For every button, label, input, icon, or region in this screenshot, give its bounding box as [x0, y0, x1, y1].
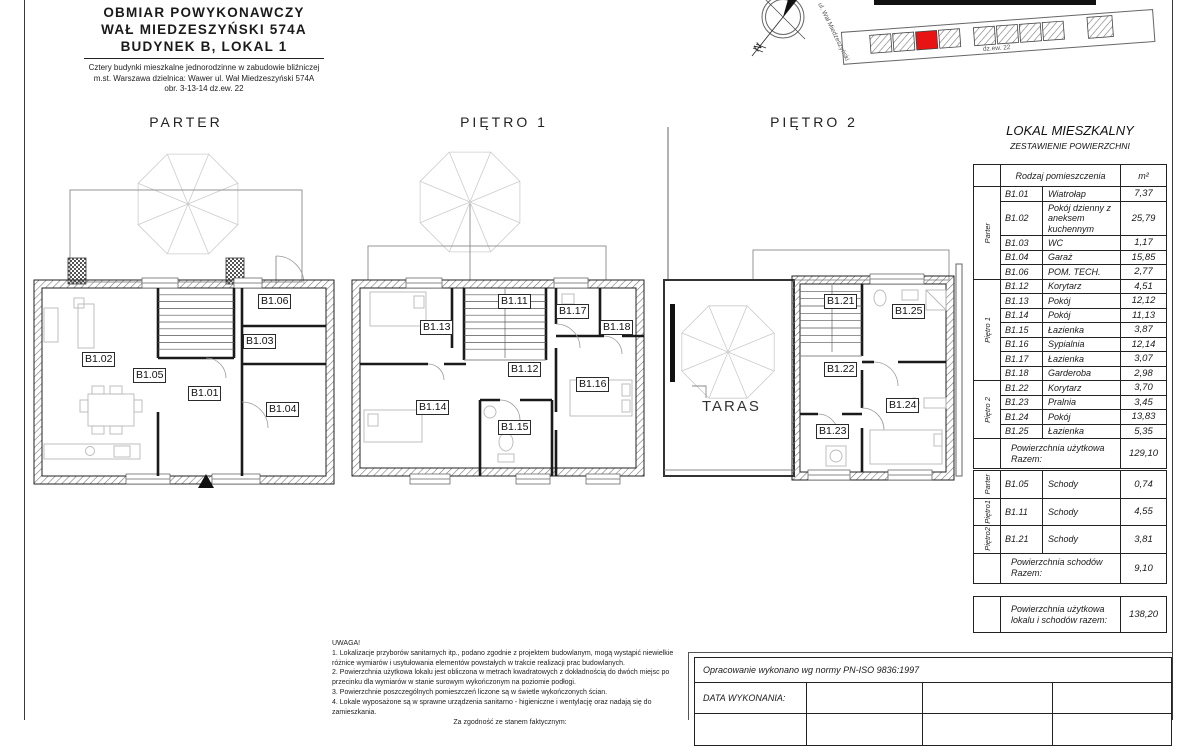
area-summary-table: Rodzaj pomieszczenia m² ParterB1.01Wiatr… [973, 164, 1167, 469]
cell-area: 7,37 [1121, 187, 1166, 201]
room-label: B1.01 [188, 386, 221, 401]
header-area-unit: m² [1121, 165, 1166, 186]
cell-area: 4,51 [1121, 280, 1166, 294]
room-label: B1.04 [266, 402, 299, 417]
table-row: B1.11Schody4,55 [1001, 499, 1166, 526]
cell-area: 5,35 [1121, 425, 1166, 439]
floor-group-label: Parter [974, 471, 1001, 498]
area-total-label: Powierzchnia użytkowa Razem: [1001, 439, 1121, 468]
cell-area: 11,13 [1121, 309, 1166, 323]
table-row: B1.06POM. TECH.2,77 [1001, 265, 1166, 279]
cell-area: 3,70 [1121, 381, 1166, 395]
cell-code: B1.03 [1001, 236, 1043, 250]
cell-area: 1,17 [1121, 236, 1166, 250]
titleblock-row [695, 714, 1171, 745]
cell-area: 12,12 [1121, 294, 1166, 308]
stairs-total-value: 9,10 [1121, 554, 1166, 583]
floor-group-label: Piętro 1 [974, 280, 1001, 381]
floor-group-label: Piętro1 [974, 499, 1001, 526]
cell-code: B1.01 [1001, 187, 1043, 201]
notes-block: UWAGA! 1. Lokalizacje przyborów sanitarn… [332, 639, 688, 728]
table-row: B1.13Pokój12,12 [1001, 294, 1166, 309]
room-label: B1.24 [886, 398, 919, 413]
plot-number-label: dz.ew. 22 [983, 44, 1011, 53]
cell-code: B1.17 [1001, 352, 1043, 366]
room-label: B1.25 [892, 304, 925, 319]
cell-area: 0,74 [1121, 471, 1166, 498]
floor-plan-pietro1: PIĘTRO 1 [348, 112, 660, 502]
cell-name: Wiatrołap [1043, 187, 1121, 201]
parter-drawing [30, 112, 342, 502]
room-label: B1.05 [133, 368, 166, 383]
room-label: B1.18 [600, 320, 633, 335]
doc-subtitle-line2: m.st. Warszawa dzielnica: Wawer ul. Wał … [78, 74, 330, 85]
cell-name: Garderoba [1043, 367, 1121, 381]
cell-name: Schody [1043, 471, 1121, 498]
title-block: Opracowanie wykonano wg normy PN-ISO 983… [694, 657, 1172, 746]
highlighted-building [916, 30, 938, 49]
cell-code: B1.12 [1001, 280, 1043, 294]
table-group: ParterB1.05Schody0,74 [974, 471, 1166, 499]
doc-title-line1: OBMIAR POWYKONAWCZY [78, 4, 330, 21]
table-row: B1.25Łazienka5,35 [1001, 425, 1166, 439]
table-row: B1.14Pokój11,13 [1001, 309, 1166, 324]
cell-area: 13,83 [1121, 410, 1166, 424]
titleblock-separator-v [688, 652, 689, 720]
stairs-total-label: Powierzchnia schodów Razem: [1001, 554, 1121, 583]
floor-group-label: Piętro 2 [974, 381, 1001, 438]
table-row: B1.03WC1,17 [1001, 236, 1166, 251]
floor-group-label: Parter [974, 187, 1001, 279]
cell-code: B1.22 [1001, 381, 1043, 395]
titleblock-cell [695, 714, 807, 745]
note-item: 3. Powierzchnie poszczególnych pomieszcz… [332, 688, 688, 698]
titleblock-cell [923, 683, 1053, 713]
table-group: Piętro 1B1.12Korytarz4,51B1.13Pokój12,12… [974, 280, 1166, 382]
cell-name: Schody [1043, 526, 1121, 553]
stairs-table-body: ParterB1.05Schody0,74Piętro1B1.11Schody4… [974, 471, 1166, 553]
cell-code: B1.06 [1001, 265, 1043, 279]
grand-total-value: 138,20 [1121, 597, 1166, 632]
cell-name: Łazienka [1043, 352, 1121, 366]
room-label: B1.06 [258, 294, 291, 309]
sheet-frame-left [24, 0, 25, 720]
titleblock-row: DATA WYKONANIA: [695, 683, 1171, 714]
terrace-label: TARAS [702, 398, 761, 415]
cell-code: B1.14 [1001, 309, 1043, 323]
cell-name: Sypialnia [1043, 338, 1121, 352]
table-group: ParterB1.01Wiatrołap7,37B1.02Pokój dzien… [974, 187, 1166, 280]
room-label: B1.03 [243, 334, 276, 349]
cell-name: Pokój [1043, 309, 1121, 323]
table-group: Piętro1B1.11Schody4,55 [974, 499, 1166, 527]
cell-name: Schody [1043, 499, 1121, 526]
doc-subtitle-line1: Cztery budynki mieszkalne jednorodzinne … [78, 63, 330, 74]
table-row: B1.16Sypialnia12,14 [1001, 338, 1166, 353]
table-row: B1.23Pralnia3,45 [1001, 396, 1166, 411]
cell-name: Korytarz [1043, 280, 1121, 294]
cell-code: B1.13 [1001, 294, 1043, 308]
table-group: Piętro2B1.21Schody3,81 [974, 526, 1166, 553]
room-label: B1.15 [498, 420, 531, 435]
stairs-total-row: Powierzchnia schodów Razem: 9,10 [974, 553, 1166, 583]
titleblock-cell [1053, 714, 1171, 745]
room-label: B1.11 [498, 294, 531, 309]
cell-code: B1.02 [1001, 202, 1043, 236]
area-table-header: Rodzaj pomieszczenia m² [974, 165, 1166, 187]
umbrella-drawing [682, 306, 774, 398]
floor-group-label: Piętro2 [974, 526, 1001, 553]
document-header: OBMIAR POWYKONAWCZY WAŁ MIEDZESZYŃSKI 57… [78, 4, 330, 95]
cell-area: 3,45 [1121, 396, 1166, 410]
area-total-row: Powierzchnia użytkowa Razem: 129,10 [974, 438, 1166, 468]
cell-name: Łazienka [1043, 425, 1121, 439]
area-table-body: ParterB1.01Wiatrołap7,37B1.02Pokój dzien… [974, 187, 1166, 438]
table-row: B1.04Garaż15,85 [1001, 251, 1166, 266]
room-label: B1.12 [508, 362, 541, 377]
cell-code: B1.24 [1001, 410, 1043, 424]
date-label: DATA WYKONANIA: [695, 683, 807, 713]
cell-name: Pokój dzienny z aneksem kuchennym [1043, 202, 1121, 236]
plot-outline: dz.ew. 22 [841, 10, 1155, 65]
cell-area: 12,14 [1121, 338, 1166, 352]
cell-name: POM. TECH. [1043, 265, 1121, 279]
cell-code: B1.21 [1001, 526, 1043, 553]
table-row: B1.15Łazienka3,87 [1001, 323, 1166, 338]
room-label: B1.23 [816, 424, 849, 439]
cell-name: Pralnia [1043, 396, 1121, 410]
note-item: 1. Lokalizacje przyborów sanitarnych itp… [332, 649, 688, 669]
sheet-frame-right [1172, 0, 1173, 720]
titleblock-cell [1053, 683, 1171, 713]
table-row: B1.22Korytarz3,70 [1001, 381, 1166, 396]
header-divider [84, 58, 324, 59]
cell-code: B1.04 [1001, 251, 1043, 265]
cell-code: B1.15 [1001, 323, 1043, 337]
table-row: B1.24Pokój13,83 [1001, 410, 1166, 425]
area-total-value: 129,10 [1121, 439, 1166, 468]
cell-name: Korytarz [1043, 381, 1121, 395]
room-label: B1.17 [556, 304, 589, 319]
room-label: B1.22 [824, 362, 857, 377]
floor-plan-pietro2: PIĘTRO 2 [658, 112, 970, 502]
note-item: 2. Powierzchnia użytkowa lokalu jest obl… [332, 668, 688, 688]
doc-title-line3: BUDYNEK B, LOKAL 1 [78, 38, 330, 55]
norm-reference: Opracowanie wykonano wg normy PN-ISO 983… [695, 658, 1171, 683]
table-subtitle: ZESTAWIENIE POWIERZCHNI [970, 141, 1170, 151]
cell-code: B1.18 [1001, 367, 1043, 381]
header-room-type: Rodzaj pomieszczenia [1001, 165, 1121, 186]
note-item: 4. Lokale wyposażone są w sprawne urządz… [332, 698, 688, 718]
floor-plan-sheet: { "header": { "title1": "OBMIAR POWYKONA… [0, 0, 1200, 720]
table-row: B1.05Schody0,74 [1001, 471, 1166, 498]
floor-plan-parter: PARTER [30, 112, 342, 502]
table-row: B1.17Łazienka3,07 [1001, 352, 1166, 367]
site-plan: ul. Wał Miedzeszyński dz.ew. 22 [792, 0, 1174, 64]
header-floor-col [974, 165, 1001, 186]
cell-name: Łazienka [1043, 323, 1121, 337]
table-group: Piętro 2B1.22Korytarz3,70B1.23Pralnia3,4… [974, 381, 1166, 438]
cell-area: 2,98 [1121, 367, 1166, 381]
grand-total-label: Powierzchnia użytkowa lokalu i schodów r… [1001, 597, 1121, 632]
table-row: B1.01Wiatrołap7,37 [1001, 187, 1166, 202]
doc-title-line2: WAŁ MIEDZESZYŃSKI 574A [78, 21, 330, 38]
titleblock-cell [807, 714, 923, 745]
table-title: LOKAL MIESZKALNY [970, 123, 1170, 138]
titleblock-separator-h [688, 652, 1172, 653]
cell-name: WC [1043, 236, 1121, 250]
notes-heading: UWAGA! [332, 639, 688, 649]
cell-code: B1.11 [1001, 499, 1043, 526]
room-label: B1.02 [82, 352, 115, 367]
cell-code: B1.16 [1001, 338, 1043, 352]
table-row: B1.02Pokój dzienny z aneksem kuchennym25… [1001, 202, 1166, 237]
cell-area: 25,79 [1121, 202, 1166, 236]
cell-area: 2,77 [1121, 265, 1166, 279]
cell-area: 15,85 [1121, 251, 1166, 265]
table-row: B1.12Korytarz4,51 [1001, 280, 1166, 295]
table-row: B1.18Garderoba2,98 [1001, 367, 1166, 381]
cell-name: Pokój [1043, 410, 1121, 424]
cell-code: B1.23 [1001, 396, 1043, 410]
room-label: B1.16 [576, 377, 609, 392]
date-value-cell [807, 683, 923, 713]
grand-total-box: Powierzchnia użytkowa lokalu i schodów r… [973, 596, 1167, 633]
titleblock-cell [923, 714, 1053, 745]
cell-area: 3,87 [1121, 323, 1166, 337]
room-label: B1.14 [416, 400, 449, 415]
cell-area: 3,07 [1121, 352, 1166, 366]
umbrella-drawing [138, 154, 238, 254]
cell-code: B1.25 [1001, 425, 1043, 439]
room-label: B1.13 [420, 320, 453, 335]
cell-name: Garaż [1043, 251, 1121, 265]
compass-north-label: N [752, 41, 766, 54]
cell-name: Pokój [1043, 294, 1121, 308]
table-row: B1.21Schody3,81 [1001, 526, 1166, 553]
cell-code: B1.05 [1001, 471, 1043, 498]
stairs-summary-table: ParterB1.05Schody0,74Piętro1B1.11Schody4… [973, 470, 1167, 584]
cell-area: 4,55 [1121, 499, 1166, 526]
cell-area: 3,81 [1121, 526, 1166, 553]
room-label: B1.21 [824, 294, 857, 309]
doc-subtitle-line3: obr. 3-13-14 dz.ew. 22 [78, 84, 330, 95]
